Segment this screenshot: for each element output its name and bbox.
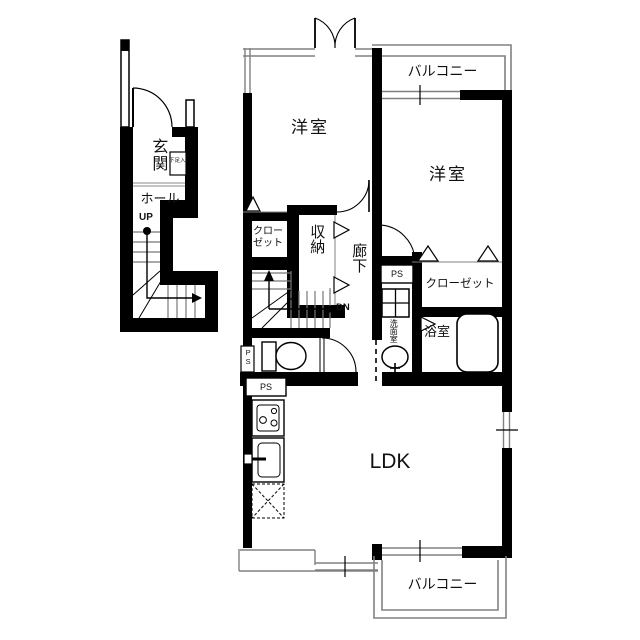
label-closet-nw: クローゼット: [253, 226, 287, 250]
label-up: UP: [139, 212, 153, 224]
label-shoe-cabinet: 下足入: [169, 158, 186, 164]
nw-room-door: [337, 180, 369, 212]
label-closet-east: クローゼット: [416, 278, 504, 291]
fence-post-left: [121, 40, 129, 127]
toilet: [262, 342, 306, 371]
label-washroom: 洗面室: [389, 319, 398, 343]
nw-room-windows: [243, 48, 372, 93]
label-balcony-north: バルコニー: [390, 63, 495, 79]
label-balcony-south: バルコニー: [390, 576, 495, 592]
west-stairs-winders: [133, 271, 164, 318]
west-block: [120, 40, 218, 332]
floor-plan: 玄関 下足入 ホール UP 洋室 バルコニー 洋室 クローゼット 収納 廊下 P…: [0, 0, 640, 640]
label-bathroom: 浴室: [424, 325, 450, 340]
wash-basin: [382, 346, 408, 373]
label-entrance: 玄関: [148, 138, 166, 172]
balcony-north-window: [382, 85, 460, 105]
floor-plan-drawing: [0, 0, 640, 640]
label-room-ne: 洋室: [413, 165, 483, 185]
label-corridor: 廊下: [350, 243, 367, 273]
storage-fold-doors: [334, 215, 349, 305]
main-block: [239, 18, 518, 618]
north-double-door: [315, 18, 355, 48]
label-ps-east: PS: [381, 269, 413, 279]
closet-east-fold-doors: [412, 246, 502, 262]
washing-machine-pan: [382, 289, 409, 317]
label-storage: 収納: [308, 224, 325, 254]
label-dn: DN: [336, 303, 350, 314]
toilet-door: [320, 338, 356, 372]
entrance-door: [133, 88, 172, 127]
label-ldk: LDK: [355, 450, 425, 474]
label-hall: ホール: [134, 192, 186, 207]
fence-post-cap: [121, 40, 129, 51]
fence-post-right: [186, 100, 194, 127]
bathtub: [457, 314, 498, 372]
label-room-nw: 洋室: [275, 118, 345, 138]
ldk-east-window: [496, 412, 518, 448]
balcony-south-door: [382, 540, 462, 562]
kitchen-stove: [252, 400, 284, 436]
label-ps-kitchen: PS: [246, 382, 286, 392]
label-ps-wall: PS: [243, 348, 252, 366]
refrigerator-space: [252, 484, 284, 518]
ldk-south-bay-window: [239, 549, 378, 577]
